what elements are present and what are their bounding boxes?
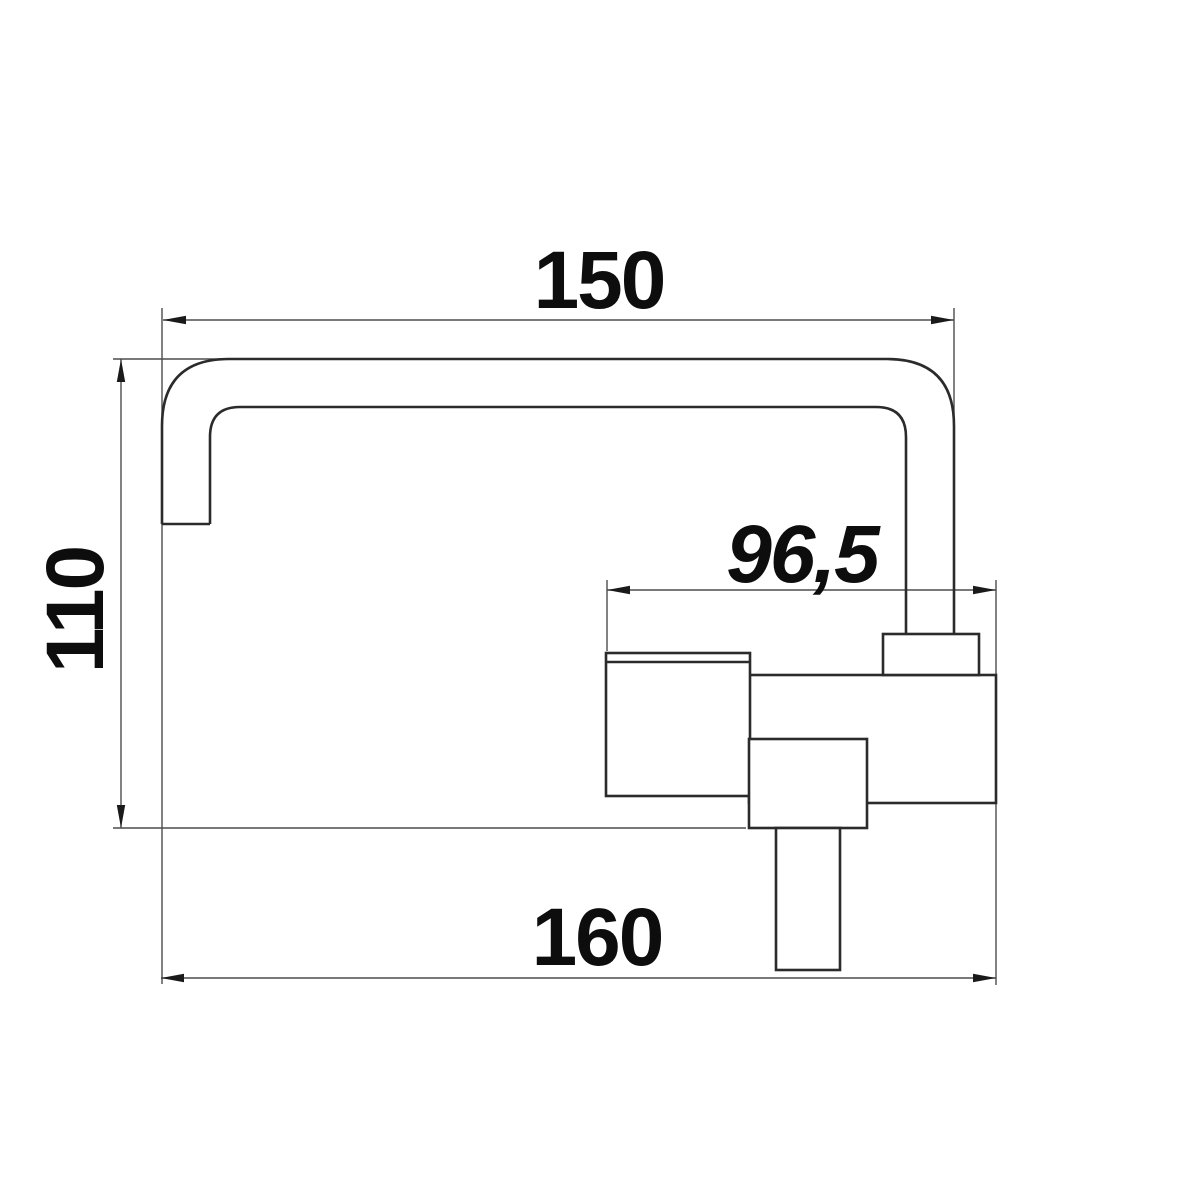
arrow-110-down: [117, 805, 125, 828]
arrow-96-left: [607, 586, 630, 594]
arrow-110-up: [117, 359, 125, 382]
spout-connector: [883, 634, 979, 675]
dimension-label-height: 110: [30, 547, 121, 673]
faucet-handle: [606, 653, 750, 796]
dimension-lines: [113, 308, 996, 985]
arrow-160-right: [973, 974, 996, 982]
arrow-160-left: [161, 974, 184, 982]
technical-drawing: 150 110 96,5 160: [0, 0, 1200, 1200]
dimension-label-spout-reach: 96,5: [726, 509, 881, 600]
arrow-96-right: [973, 586, 996, 594]
faucet-dimension-diagram: 150 110 96,5 160: [0, 0, 1200, 1200]
mounting-shank: [776, 828, 840, 970]
dimension-label-base-width: 160: [532, 892, 663, 983]
arrow-150-left: [163, 316, 186, 324]
faucet-base-block: [749, 739, 867, 828]
dimension-arrowheads: [117, 316, 996, 982]
dimension-label-top-width: 150: [534, 235, 665, 326]
faucet-outline: [162, 359, 996, 970]
arrow-150-right: [931, 316, 954, 324]
dimension-labels: 150 110 96,5 160: [30, 235, 881, 983]
